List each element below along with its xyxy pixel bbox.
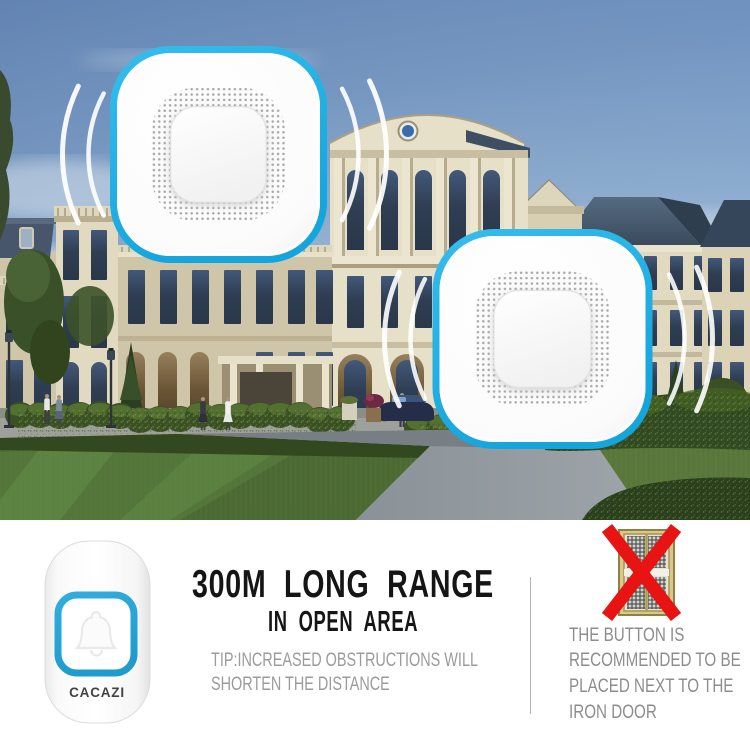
svg-text:CACAZI: CACAZI	[69, 685, 125, 700]
